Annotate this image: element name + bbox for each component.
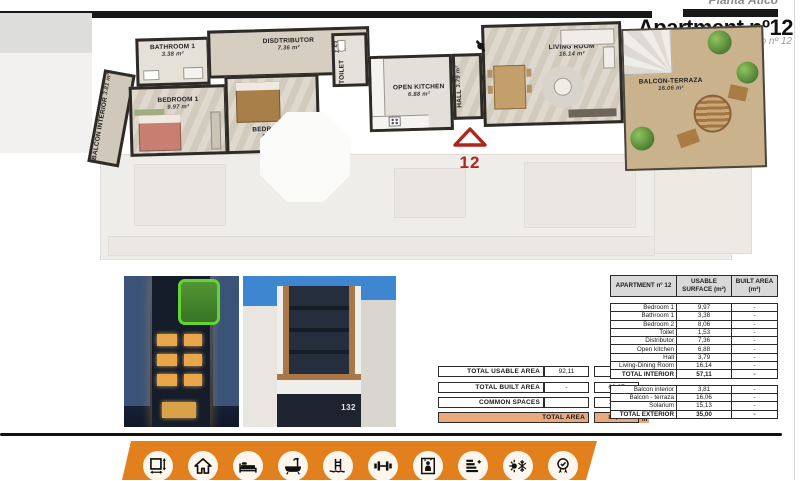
- room-balcon-interior: BALCON INTERIOR 3.81 m²: [87, 69, 135, 167]
- wood-canopy: [277, 374, 361, 380]
- energy-rating-icon: [458, 451, 488, 481]
- sofa: [560, 28, 614, 46]
- terrace-table: [693, 94, 732, 133]
- building-facade: 132: [277, 286, 361, 427]
- ceiling-fan-icon: [472, 38, 488, 54]
- summary-label: TOTAL USABLE AREA: [438, 366, 544, 377]
- summary-row-built: TOTAL BUILT AREA - 69,67: [438, 382, 639, 393]
- sink: [143, 70, 159, 80]
- total-area-label: TOTAL AREA: [438, 412, 589, 423]
- stove: [389, 116, 401, 126]
- room-living-room: LIVING ROOM16.14 m²: [481, 21, 624, 127]
- chair: [488, 86, 493, 94]
- detail-table-header: APARTMENT nº 12 USABLE SURFACE (m²) BUIL…: [610, 275, 778, 297]
- table-row: Balcon interior3,81-: [610, 386, 778, 394]
- gym-icon: [368, 451, 398, 481]
- table-row: Hall3,79-: [610, 354, 778, 362]
- table-row: Bathroom 13,38-: [610, 312, 778, 320]
- amenities-strip: [120, 441, 600, 480]
- summary-row-usable: TOTAL USABLE AREA 92,11 -: [438, 366, 639, 377]
- table-row: Living-Dining Room16,14-: [610, 362, 778, 370]
- table-row: Bedroom 28,06-: [610, 321, 778, 329]
- bottom-black-rule: [0, 433, 782, 436]
- elevator-icon: [413, 451, 443, 481]
- chair: [526, 69, 531, 77]
- pillow: [138, 114, 180, 123]
- floor-plan: BALCON INTERIOR 3.81 m² BATHROOM 13.38 m…: [92, 8, 764, 274]
- lit-window: [184, 354, 202, 366]
- room-hall: HALL 3.79 m²: [452, 53, 484, 120]
- room-bathroom-1: BATHROOM 13.38 m²: [135, 37, 210, 87]
- plant: [707, 30, 732, 55]
- chair: [527, 85, 532, 93]
- summary-usable-value: [544, 397, 589, 408]
- table-row: Distributor7,36-: [610, 337, 778, 345]
- wc: [337, 40, 345, 52]
- neighbour-building: [124, 276, 150, 406]
- summary-label: COMMON SPACES: [438, 397, 544, 408]
- area-detail-table: APARTMENT nº 12 USABLE SURFACE (m²) BUIL…: [610, 275, 778, 419]
- quality-badge-icon: [548, 451, 578, 481]
- lit-window: [184, 374, 202, 386]
- table-row: Bedroom 19,97-: [610, 304, 778, 312]
- marker-number: 12: [444, 154, 496, 171]
- terrace-chair: [677, 128, 701, 148]
- apartment-marker: 12: [444, 126, 496, 171]
- light-well: [260, 112, 350, 202]
- header-apartment: APARTMENT nº 12: [610, 275, 677, 297]
- building-photo-night: [124, 276, 239, 427]
- solarium-highlight-box: [178, 279, 220, 325]
- summary-usable-value: -: [544, 382, 589, 393]
- lit-window: [157, 334, 177, 346]
- chair: [487, 70, 492, 78]
- plant: [630, 126, 655, 151]
- climate-icon: [503, 451, 533, 481]
- rug: [134, 109, 164, 116]
- bed-icon: [233, 451, 263, 481]
- lit-window: [184, 334, 202, 346]
- interior-rows: Bedroom 19,97-Bathroom 13,38-Bedroom 28,…: [610, 303, 778, 379]
- bath-icon: [278, 451, 308, 481]
- table-row: Toilet1,53-: [610, 329, 778, 337]
- exterior-rows: Balcon interior3,81-Balcon - terraza16,0…: [610, 385, 778, 419]
- table-row: TOTAL INTERIOR57,11-: [610, 370, 778, 378]
- plant: [736, 61, 759, 84]
- page-edge: [794, 0, 795, 480]
- summary-usable-value: 92,11: [544, 366, 589, 377]
- brochure-page: { "header": { "floor_label": "Planta Áti…: [0, 0, 800, 480]
- left-ghost-block: [0, 13, 92, 53]
- lit-window: [157, 374, 177, 386]
- neighbour-building: [243, 306, 279, 427]
- pool-icon: [323, 451, 353, 481]
- dimensions-icon: [143, 451, 173, 481]
- home-icon: [188, 451, 218, 481]
- sofa: [603, 46, 616, 68]
- table-row: Open kitchen6,88-: [610, 345, 778, 353]
- table-row: Balcon - terraza16,06-: [610, 394, 778, 402]
- header-built-area: BUILT AREA (m²): [732, 275, 778, 297]
- lit-storefront: [162, 402, 196, 418]
- room-balcon-terraza: BALCON-TERRAZA16.06 m²: [621, 25, 767, 171]
- glass-balconies: [283, 286, 355, 374]
- wardrobe: [210, 111, 221, 149]
- room-toilet: TOILET 1.53 m²: [331, 32, 368, 87]
- table-row: TOTAL EXTERIOR35,00-: [610, 411, 778, 419]
- pillow: [236, 82, 280, 91]
- shower: [183, 67, 203, 80]
- floor-label: Planta Ático: [709, 0, 778, 7]
- table-row: Solarium15,13-: [610, 402, 778, 410]
- summary-label: TOTAL BUILT AREA: [438, 382, 544, 393]
- spiral-stairs: [623, 30, 672, 75]
- neighbour-building: [360, 300, 396, 427]
- building-photo-day: 132: [243, 276, 396, 427]
- house-number: 132: [341, 403, 356, 412]
- dining-table: [493, 65, 526, 110]
- terrace-chair: [728, 84, 749, 102]
- summary-row-common: COMMON SPACES 15,90: [438, 397, 639, 408]
- header-usable-surface: USABLE SURFACE (m²): [677, 275, 732, 297]
- lit-window: [157, 354, 177, 366]
- left-ghost-block-light: [0, 53, 92, 153]
- marker-triangle-icon: [452, 126, 488, 148]
- tv-bench: [568, 108, 616, 117]
- room-open-kitchen: OPEN KITCHEN6.88 m²: [368, 54, 454, 132]
- room-bedroom-1: BEDROOM 19.97 m²: [129, 84, 229, 157]
